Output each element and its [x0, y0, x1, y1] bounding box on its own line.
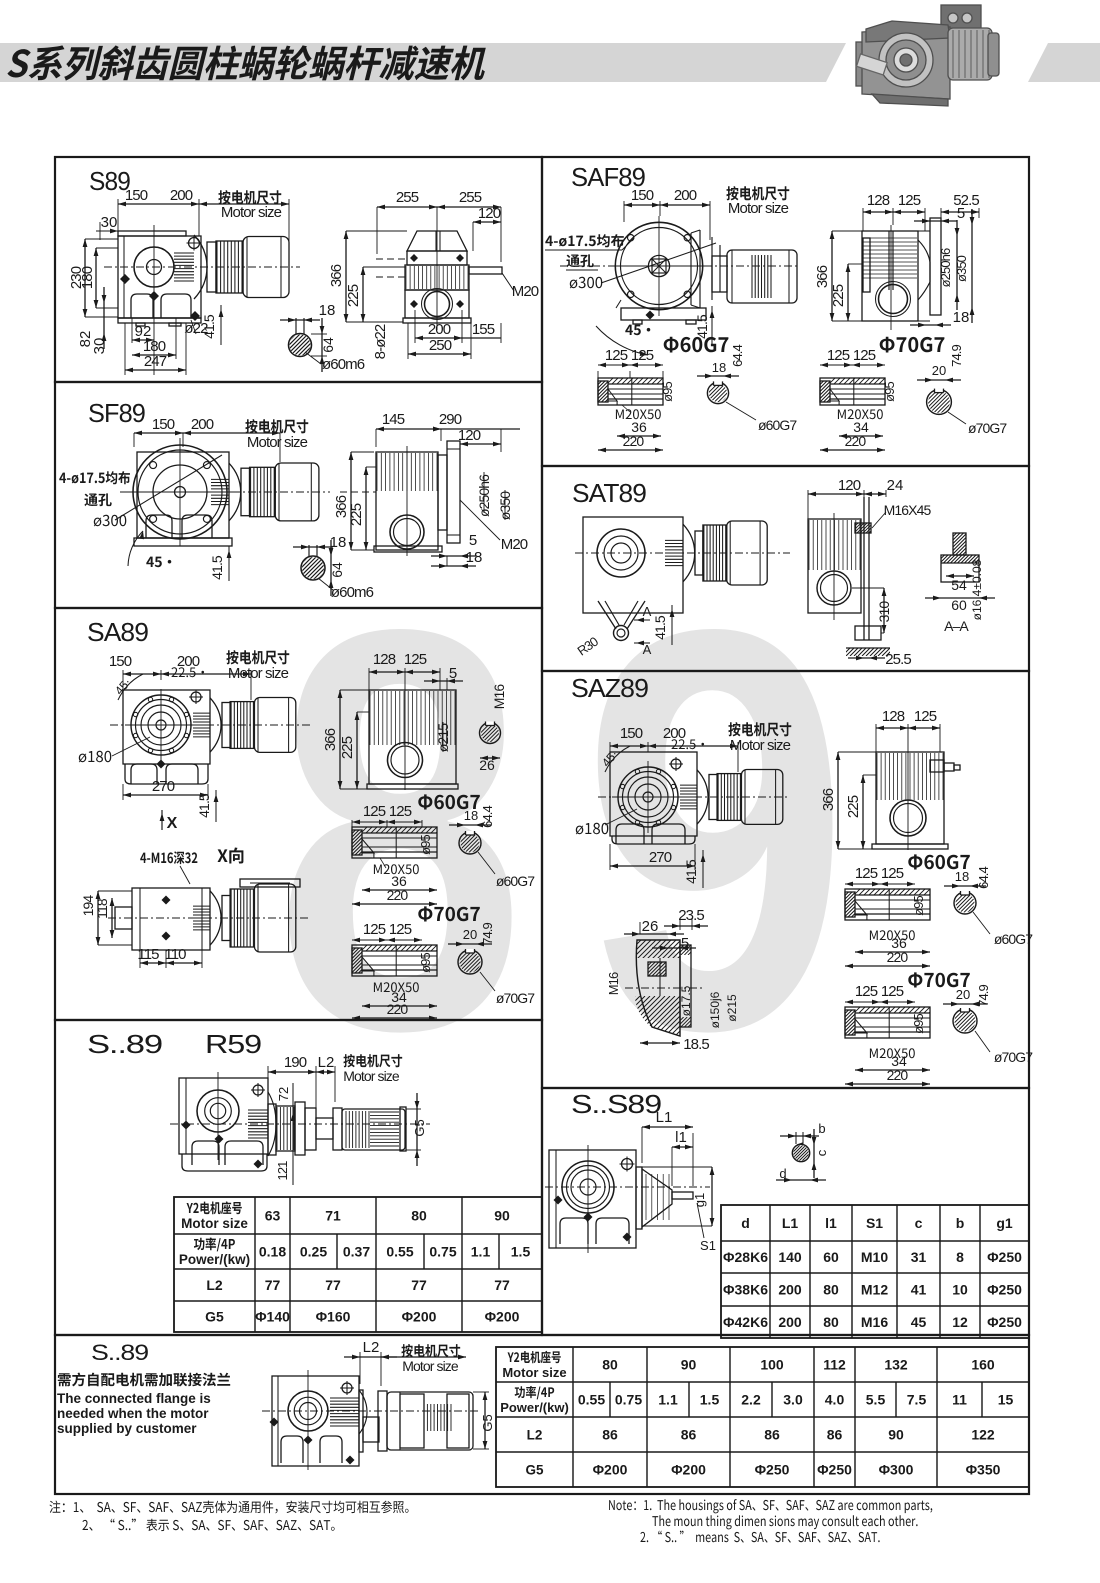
svg-text:18.5: 18.5 [683, 1036, 709, 1053]
svg-text:120: 120 [838, 477, 861, 494]
svg-text:Motor size: Motor size [181, 1216, 248, 1231]
svg-text:4.0: 4.0 [825, 1392, 845, 1408]
svg-text:5.5: 5.5 [866, 1392, 886, 1408]
svg-text:255: 255 [396, 189, 419, 206]
svg-text:247: 247 [144, 353, 167, 370]
svg-text:l1: l1 [825, 1215, 837, 1231]
svg-text:ø350: ø350 [954, 255, 969, 282]
svg-text:11: 11 [952, 1392, 967, 1408]
svg-text:90: 90 [888, 1427, 904, 1443]
svg-text:150: 150 [109, 653, 132, 670]
svg-text:86: 86 [827, 1427, 843, 1443]
svg-text:L2: L2 [206, 1277, 223, 1293]
svg-text:74.9: 74.9 [480, 922, 495, 944]
svg-text:ø95: ø95 [911, 895, 926, 915]
svg-text:132: 132 [884, 1357, 908, 1373]
svg-text:18: 18 [953, 309, 970, 326]
svg-text:S1: S1 [700, 1238, 716, 1253]
svg-text:270: 270 [152, 778, 175, 795]
svg-text:3.0: 3.0 [783, 1392, 803, 1408]
svg-text:ø60G7: ø60G7 [496, 873, 535, 889]
svg-text:26: 26 [642, 918, 659, 935]
svg-text:Φ350: Φ350 [966, 1462, 1001, 1478]
svg-text:1.5: 1.5 [511, 1244, 531, 1260]
svg-text:125: 125 [404, 651, 427, 668]
svg-text:150: 150 [125, 187, 148, 204]
svg-text:d: d [779, 1166, 786, 1181]
svg-text:60: 60 [823, 1249, 839, 1265]
svg-text:M10: M10 [861, 1249, 888, 1265]
svg-text:Φ140: Φ140 [255, 1309, 290, 1325]
svg-text:9: 9 [581, 512, 850, 1149]
svg-text:140: 140 [778, 1249, 802, 1265]
svg-text:125: 125 [631, 347, 654, 364]
svg-text:5: 5 [469, 532, 477, 549]
svg-text:23.5: 23.5 [678, 907, 704, 924]
svg-text:A: A [643, 642, 652, 657]
svg-text:310: 310 [876, 601, 892, 623]
svg-text:L2: L2 [527, 1428, 543, 1443]
svg-text:18: 18 [955, 869, 969, 884]
svg-text:G5: G5 [480, 1414, 495, 1431]
svg-text:90: 90 [494, 1208, 510, 1224]
svg-text:64: 64 [320, 337, 336, 353]
svg-text:G5: G5 [205, 1309, 224, 1325]
svg-text:Motor size: Motor size [730, 737, 791, 754]
svg-text:Φ200: Φ200 [593, 1462, 628, 1478]
svg-text:90: 90 [681, 1357, 697, 1373]
svg-text:5: 5 [957, 205, 965, 222]
svg-text:45: 45 [911, 1314, 927, 1330]
svg-text:S..89: S..89 [91, 1340, 149, 1365]
svg-text:ø17.5: ø17.5 [679, 985, 693, 1016]
svg-text:15: 15 [998, 1392, 1014, 1408]
svg-text:ø95: ø95 [418, 834, 433, 854]
svg-text:31: 31 [911, 1249, 927, 1265]
svg-text:128: 128 [867, 192, 890, 209]
svg-text:ø250h6: ø250h6 [938, 248, 953, 287]
svg-text:Φ200: Φ200 [485, 1309, 520, 1325]
svg-text:12: 12 [952, 1314, 968, 1330]
svg-text:125: 125 [881, 983, 904, 1000]
svg-text:2.2: 2.2 [741, 1392, 761, 1408]
svg-text:125: 125 [898, 192, 921, 209]
svg-text:30: 30 [91, 338, 108, 355]
svg-text:125: 125 [914, 708, 937, 725]
svg-text:20: 20 [956, 987, 970, 1002]
svg-text:77: 77 [325, 1277, 341, 1293]
svg-text:Φ300: Φ300 [879, 1462, 914, 1478]
svg-text:100: 100 [760, 1357, 784, 1373]
svg-text:0.55: 0.55 [386, 1244, 413, 1260]
svg-text:0.18: 0.18 [259, 1244, 286, 1260]
svg-text:255: 255 [459, 189, 482, 206]
svg-text:Φ250: Φ250 [987, 1282, 1022, 1298]
svg-text:0.75: 0.75 [429, 1244, 456, 1260]
svg-text:118: 118 [94, 898, 110, 919]
svg-text:225: 225 [845, 795, 862, 818]
svg-text:S1: S1 [866, 1215, 883, 1231]
svg-text:200: 200 [428, 321, 451, 338]
svg-text:155: 155 [472, 321, 495, 338]
svg-text:80: 80 [823, 1282, 839, 1298]
svg-text:122: 122 [971, 1427, 995, 1443]
svg-text:8: 8 [275, 511, 525, 1148]
svg-text:0.25: 0.25 [300, 1244, 327, 1260]
svg-text:ø95: ø95 [882, 381, 897, 401]
svg-text:366: 366 [328, 264, 345, 287]
svg-text:0.37: 0.37 [343, 1244, 370, 1260]
svg-text:ø60G7: ø60G7 [994, 931, 1033, 947]
svg-text:R59: R59 [205, 1029, 262, 1059]
svg-text:M16: M16 [491, 684, 507, 710]
svg-text:SAT89: SAT89 [572, 478, 646, 508]
svg-text:ø150j6: ø150j6 [708, 991, 722, 1028]
svg-text:M20: M20 [501, 536, 528, 553]
svg-text:125: 125 [389, 921, 412, 938]
svg-text:10: 10 [952, 1282, 968, 1298]
svg-text:120: 120 [458, 427, 481, 444]
svg-text:200: 200 [778, 1282, 802, 1298]
svg-text:The connected flange is: The connected flange is [57, 1391, 211, 1406]
svg-text:145: 145 [382, 411, 405, 428]
svg-text:SA89: SA89 [87, 617, 148, 647]
svg-text:18: 18 [319, 302, 336, 319]
svg-text:72: 72 [276, 1087, 291, 1101]
svg-text:41: 41 [911, 1282, 927, 1298]
svg-text:45·: 45· [112, 675, 134, 697]
svg-text:20: 20 [932, 363, 946, 378]
svg-text:b: b [956, 1215, 965, 1231]
svg-text:ø95: ø95 [911, 1013, 926, 1033]
svg-text:366: 366 [820, 788, 837, 811]
svg-text:125: 125 [827, 347, 850, 364]
svg-text:74.9: 74.9 [949, 344, 964, 366]
svg-text:L2: L2 [318, 1054, 335, 1071]
svg-text:8-ø22: 8-ø22 [372, 324, 389, 359]
svg-text:c: c [915, 1215, 923, 1231]
svg-text:G5: G5 [412, 1119, 427, 1136]
svg-text:Φ250: Φ250 [755, 1462, 790, 1478]
svg-text:S..S89: S..S89 [571, 1089, 662, 1119]
svg-text:18: 18 [712, 360, 726, 375]
svg-text:125: 125 [853, 347, 876, 364]
svg-text:M16: M16 [606, 972, 621, 995]
svg-text:112: 112 [823, 1357, 846, 1373]
svg-text:Motor size: Motor size [228, 665, 289, 682]
svg-text:64.4: 64.4 [480, 805, 495, 827]
svg-text:Motor size: Motor size [728, 200, 789, 217]
svg-text:125: 125 [363, 803, 386, 820]
svg-text:220: 220 [623, 433, 645, 449]
svg-text:Power/(kw): Power/(kw) [500, 1400, 569, 1415]
svg-text:M20: M20 [512, 283, 539, 300]
svg-text:220: 220 [387, 1001, 409, 1017]
svg-text:64.4: 64.4 [976, 866, 991, 888]
svg-text:366: 366 [814, 265, 831, 288]
svg-text:18: 18 [466, 549, 483, 566]
svg-text:supplied by customer: supplied by customer [57, 1421, 197, 1436]
svg-text:24: 24 [887, 477, 904, 494]
svg-text:ø60G7: ø60G7 [758, 417, 797, 433]
svg-text:200: 200 [170, 187, 193, 204]
svg-text:SF89: SF89 [88, 398, 145, 428]
svg-text:18: 18 [464, 808, 478, 823]
svg-text:128: 128 [373, 651, 396, 668]
svg-text:115: 115 [137, 946, 159, 963]
svg-text:80: 80 [411, 1208, 427, 1224]
svg-text:L1: L1 [782, 1215, 799, 1231]
svg-text:220: 220 [887, 1067, 909, 1083]
svg-text:X: X [167, 815, 178, 832]
svg-text:A: A [643, 604, 652, 619]
svg-text:30: 30 [101, 214, 118, 231]
svg-text:225: 225 [348, 503, 365, 526]
svg-text:77: 77 [265, 1277, 281, 1293]
svg-text:200: 200 [191, 416, 214, 433]
svg-text:270: 270 [649, 849, 672, 866]
svg-text:121: 121 [275, 1161, 290, 1181]
svg-text:71: 71 [325, 1208, 341, 1224]
svg-text:ø95: ø95 [660, 381, 675, 401]
svg-text:0.75: 0.75 [615, 1392, 642, 1408]
svg-text:160: 160 [971, 1357, 995, 1373]
svg-text:41.5: 41.5 [683, 859, 699, 884]
svg-text:220: 220 [887, 949, 909, 965]
svg-text:250: 250 [429, 337, 452, 354]
svg-text:86: 86 [602, 1427, 618, 1443]
svg-text:1.1: 1.1 [658, 1392, 678, 1408]
svg-text:225: 225 [339, 736, 356, 759]
svg-text:Φ42K6: Φ42K6 [723, 1314, 768, 1330]
svg-text:125: 125 [605, 347, 628, 364]
svg-text:Φ38K6: Φ38K6 [723, 1282, 768, 1298]
svg-text:150: 150 [620, 725, 643, 742]
svg-text:g1: g1 [692, 1193, 707, 1207]
svg-text:l1: l1 [675, 1129, 687, 1146]
svg-text:110: 110 [164, 946, 186, 963]
svg-text:225: 225 [830, 284, 847, 307]
svg-text:150: 150 [152, 416, 175, 433]
svg-text:64.4: 64.4 [730, 344, 745, 366]
svg-text:Φ250: Φ250 [987, 1314, 1022, 1330]
svg-text:M12: M12 [861, 1282, 888, 1298]
svg-text:190: 190 [284, 1054, 307, 1071]
svg-text:41.5: 41.5 [209, 555, 225, 580]
svg-text:Motor size: Motor size [343, 1068, 400, 1084]
svg-text:64: 64 [329, 562, 345, 578]
svg-text:290: 290 [439, 411, 462, 428]
svg-text:ø70G7: ø70G7 [496, 990, 535, 1006]
svg-text:5: 5 [681, 935, 689, 952]
svg-text:125: 125 [389, 803, 412, 820]
svg-text:200: 200 [778, 1314, 802, 1330]
svg-text:54: 54 [951, 577, 967, 593]
svg-text:L2: L2 [363, 1339, 380, 1356]
svg-text:200: 200 [177, 653, 200, 670]
svg-text:S..89: S..89 [87, 1029, 163, 1059]
svg-text:150: 150 [631, 187, 654, 204]
svg-text:180: 180 [79, 266, 96, 289]
svg-text:0.55: 0.55 [578, 1392, 605, 1408]
svg-text:Motor size: Motor size [221, 204, 282, 221]
svg-text:41.5: 41.5 [694, 314, 710, 339]
svg-text:d: d [741, 1215, 750, 1231]
svg-text:80: 80 [602, 1357, 618, 1373]
svg-text:26: 26 [479, 757, 495, 773]
svg-text:ø215: ø215 [725, 994, 739, 1022]
svg-text:8: 8 [956, 1249, 964, 1265]
svg-text:20: 20 [463, 927, 477, 942]
svg-text:g1: g1 [996, 1215, 1013, 1231]
svg-text:125: 125 [881, 865, 904, 882]
svg-text:needed when the motor: needed when the motor [57, 1406, 209, 1421]
svg-text:77: 77 [494, 1277, 510, 1293]
svg-text:ø95: ø95 [418, 952, 433, 972]
svg-text:Motor size: Motor size [247, 434, 308, 451]
svg-text:7.5: 7.5 [907, 1392, 927, 1408]
svg-text:74.9: 74.9 [976, 984, 991, 1006]
svg-text:Φ160: Φ160 [316, 1309, 351, 1325]
svg-text:5: 5 [449, 665, 457, 682]
svg-text:ø70G7: ø70G7 [968, 420, 1007, 436]
svg-text:63: 63 [265, 1208, 281, 1224]
svg-text:L1: L1 [656, 1109, 673, 1126]
svg-text:60: 60 [951, 597, 967, 613]
svg-text:ø60m6: ø60m6 [331, 584, 374, 601]
svg-text:125: 125 [855, 983, 878, 1000]
svg-text:128: 128 [882, 708, 905, 725]
svg-text:M16: M16 [861, 1314, 888, 1330]
svg-text:Motor size: Motor size [402, 1358, 459, 1374]
svg-text:80: 80 [823, 1314, 839, 1330]
svg-text:Φ250: Φ250 [817, 1462, 852, 1478]
svg-text:220: 220 [845, 433, 867, 449]
svg-text:ø60m6: ø60m6 [322, 356, 365, 373]
svg-text:125: 125 [855, 865, 878, 882]
svg-text:86: 86 [681, 1427, 697, 1443]
svg-text:ø16.4±0.08: ø16.4±0.08 [970, 559, 984, 620]
svg-text:Φ28K6: Φ28K6 [723, 1249, 768, 1265]
svg-text:1.1: 1.1 [471, 1244, 491, 1260]
svg-text:Φ200: Φ200 [402, 1309, 437, 1325]
svg-text:200: 200 [674, 187, 697, 204]
svg-text:86: 86 [764, 1427, 780, 1443]
svg-text:c: c [814, 1149, 829, 1156]
svg-text:Φ200: Φ200 [671, 1462, 706, 1478]
svg-text:Power/(kw): Power/(kw) [179, 1252, 250, 1267]
svg-text:125: 125 [363, 921, 386, 938]
svg-text:A–A: A–A [944, 618, 969, 634]
svg-text:225: 225 [345, 284, 362, 307]
svg-text:77: 77 [411, 1277, 427, 1293]
svg-text:120: 120 [478, 205, 501, 222]
svg-text:Φ250: Φ250 [987, 1249, 1022, 1265]
svg-text:ø70G7: ø70G7 [994, 1049, 1033, 1065]
svg-text:G5: G5 [525, 1463, 544, 1478]
svg-text:25.5: 25.5 [885, 651, 911, 668]
svg-text:41.5: 41.5 [652, 615, 668, 640]
svg-text:b: b [818, 1121, 825, 1136]
svg-text:41.5: 41.5 [196, 793, 212, 818]
svg-text:M16X45: M16X45 [884, 502, 932, 518]
svg-text:Motor size: Motor size [502, 1365, 566, 1380]
svg-text:1.5: 1.5 [700, 1392, 720, 1408]
svg-text:220: 220 [387, 887, 409, 903]
svg-text:SAZ89: SAZ89 [571, 673, 648, 703]
svg-text:366: 366 [322, 728, 339, 751]
svg-text:41.5: 41.5 [201, 314, 217, 339]
